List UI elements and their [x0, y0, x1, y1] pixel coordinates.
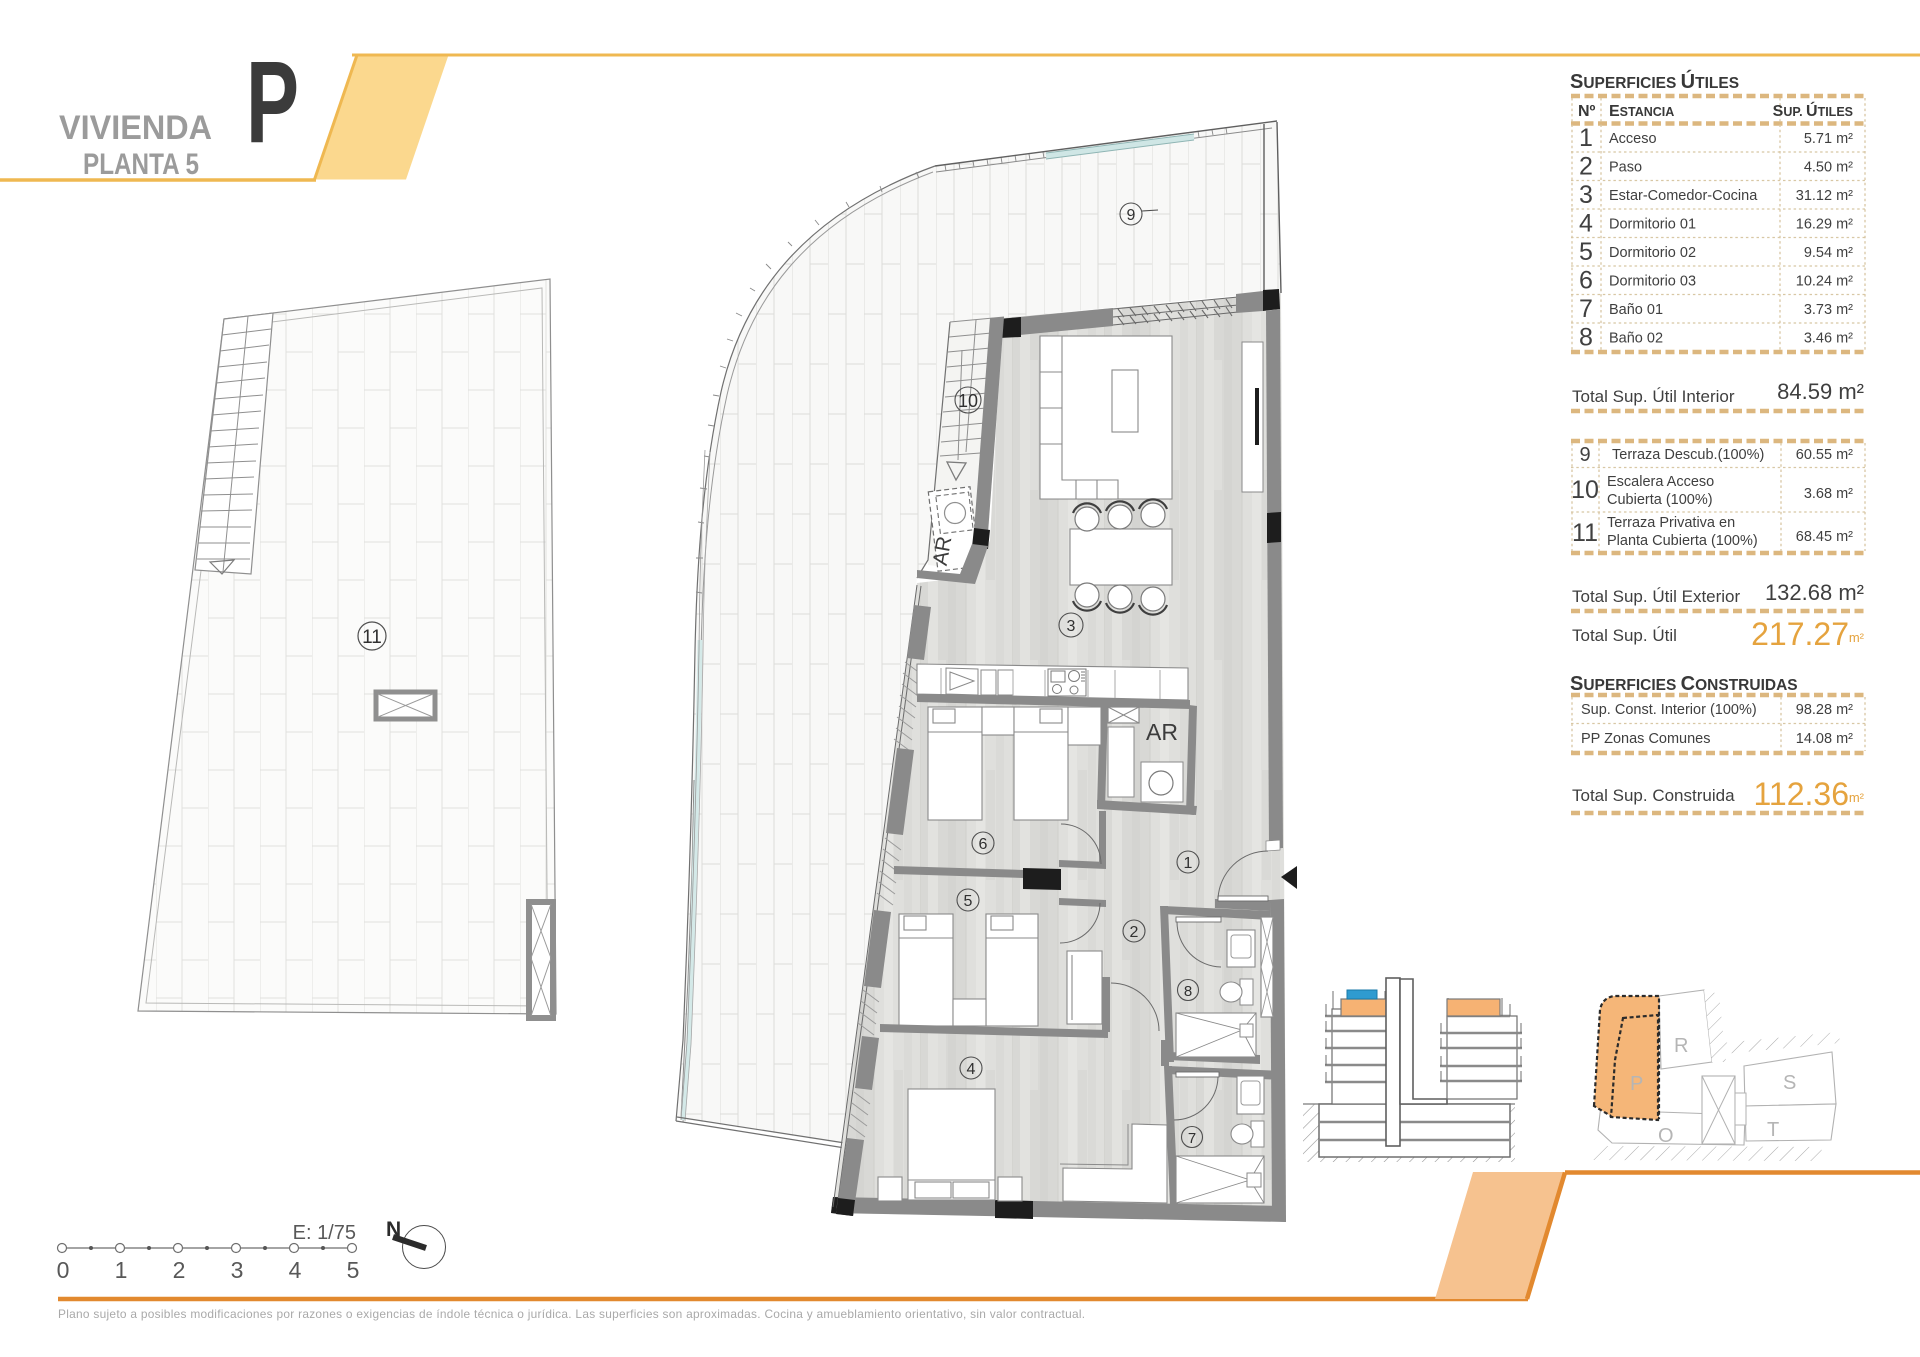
svg-text:SUP. ÚTILES: SUP. ÚTILES: [1773, 101, 1853, 120]
svg-text:Escalera Acceso: Escalera Acceso: [1607, 474, 1714, 490]
svg-text:10: 10: [958, 391, 978, 411]
svg-text:8: 8: [1579, 324, 1593, 352]
svg-text:Terraza Privativa en: Terraza Privativa en: [1607, 515, 1735, 531]
svg-text:84.59 m²: 84.59 m²: [1777, 379, 1864, 404]
svg-text:3.46 m²: 3.46 m²: [1804, 331, 1853, 347]
svg-text:1: 1: [1184, 855, 1193, 872]
svg-text:Planta Cubierta (100%): Planta Cubierta (100%): [1607, 533, 1758, 549]
svg-text:3: 3: [1579, 181, 1593, 209]
svg-text:Baño 02: Baño 02: [1609, 331, 1663, 347]
svg-text:Total Sup. Útil Interior: Total Sup. Útil Interior: [1572, 387, 1735, 406]
svg-text:7: 7: [1188, 1130, 1196, 1147]
svg-text:11: 11: [1572, 519, 1598, 547]
svg-text:Dormitorio 02: Dormitorio 02: [1609, 245, 1696, 261]
svg-text:Dormitorio 03: Dormitorio 03: [1609, 274, 1696, 290]
svg-text:6: 6: [979, 836, 988, 853]
svg-text:Sup. Const. Interior (100%): Sup. Const. Interior (100%): [1581, 702, 1757, 718]
svg-text:112.36: 112.36: [1754, 776, 1850, 812]
svg-text:Estar-Comedor-Cocina: Estar-Comedor-Cocina: [1609, 188, 1758, 204]
svg-text:8: 8: [1184, 983, 1192, 1000]
svg-text:m²: m²: [1849, 790, 1865, 805]
svg-text:Terraza Descub.(100%): Terraza Descub.(100%): [1612, 447, 1764, 463]
svg-text:T: T: [1767, 1119, 1779, 1141]
svg-text:16.29 m²: 16.29 m²: [1796, 217, 1853, 233]
svg-text:Nº: Nº: [1578, 103, 1596, 120]
svg-text:10: 10: [1571, 476, 1599, 504]
svg-text:9: 9: [1127, 207, 1136, 224]
svg-text:9: 9: [1579, 444, 1590, 466]
svg-text:Paso: Paso: [1609, 160, 1642, 176]
svg-text:VIVIENDA: VIVIENDA: [59, 109, 212, 147]
svg-text:Total Sup. Construida: Total Sup. Construida: [1572, 786, 1735, 805]
svg-text:10.24 m²: 10.24 m²: [1796, 274, 1853, 290]
svg-text:4: 4: [967, 1061, 976, 1078]
svg-text:PLANTA 5: PLANTA 5: [83, 148, 199, 181]
svg-text:E: 1/75: E: 1/75: [293, 1222, 356, 1244]
svg-text:4: 4: [1579, 210, 1593, 238]
svg-text:1: 1: [1579, 124, 1593, 152]
svg-text:2: 2: [173, 1257, 186, 1283]
svg-text:3: 3: [231, 1257, 244, 1283]
svg-text:Cubierta (100%): Cubierta (100%): [1607, 492, 1713, 508]
svg-text:PP Zonas Comunes: PP Zonas Comunes: [1581, 731, 1711, 747]
svg-text:11: 11: [362, 627, 382, 648]
svg-text:Dormitorio 01: Dormitorio 01: [1609, 217, 1696, 233]
svg-text:N: N: [386, 1218, 401, 1241]
svg-text:m²: m²: [1849, 630, 1865, 645]
svg-text:60.55 m²: 60.55 m²: [1796, 447, 1853, 463]
svg-text:S: S: [1783, 1072, 1796, 1094]
svg-text:5: 5: [1579, 238, 1593, 266]
svg-text:O: O: [1658, 1125, 1674, 1147]
svg-text:Total Sup. Útil Exterior: Total Sup. Útil Exterior: [1572, 587, 1741, 606]
svg-text:3.73 m²: 3.73 m²: [1804, 302, 1853, 318]
svg-text:31.12 m²: 31.12 m²: [1796, 188, 1853, 204]
svg-text:P: P: [246, 37, 299, 167]
svg-text:R: R: [1674, 1035, 1688, 1057]
svg-text:5.71 m²: 5.71 m²: [1804, 131, 1853, 147]
svg-text:3: 3: [1067, 618, 1076, 635]
svg-text:3.68 m²: 3.68 m²: [1804, 486, 1853, 502]
svg-text:14.08 m²: 14.08 m²: [1796, 731, 1853, 747]
svg-text:217.27: 217.27: [1751, 616, 1849, 652]
svg-text:5: 5: [964, 893, 973, 910]
svg-text:ESTANCIA: ESTANCIA: [1609, 103, 1674, 120]
svg-text:AR: AR: [1146, 719, 1178, 745]
svg-text:SUPERFICIES ÚTILES: SUPERFICIES ÚTILES: [1570, 69, 1739, 93]
svg-text:5: 5: [347, 1257, 360, 1283]
svg-text:SUPERFICIES CONSTRUIDAS: SUPERFICIES CONSTRUIDAS: [1570, 673, 1798, 695]
svg-text:Baño 01: Baño 01: [1609, 302, 1663, 318]
svg-text:2: 2: [1130, 924, 1139, 941]
svg-text:132.68 m²: 132.68 m²: [1765, 580, 1864, 605]
svg-text:9.54 m²: 9.54 m²: [1804, 245, 1853, 261]
svg-text:6: 6: [1579, 267, 1593, 295]
svg-text:0: 0: [57, 1257, 70, 1283]
svg-text:7: 7: [1579, 295, 1593, 323]
svg-text:98.28 m²: 98.28 m²: [1796, 702, 1853, 718]
svg-text:4: 4: [289, 1257, 302, 1283]
svg-text:1: 1: [115, 1257, 128, 1283]
svg-text:Total Sup. Útil: Total Sup. Útil: [1572, 626, 1677, 645]
svg-text:P: P: [1630, 1073, 1643, 1095]
svg-text:4.50 m²: 4.50 m²: [1804, 160, 1853, 176]
svg-text:Acceso: Acceso: [1609, 131, 1657, 147]
svg-text:68.45 m²: 68.45 m²: [1796, 529, 1853, 545]
svg-text:2: 2: [1579, 153, 1593, 181]
